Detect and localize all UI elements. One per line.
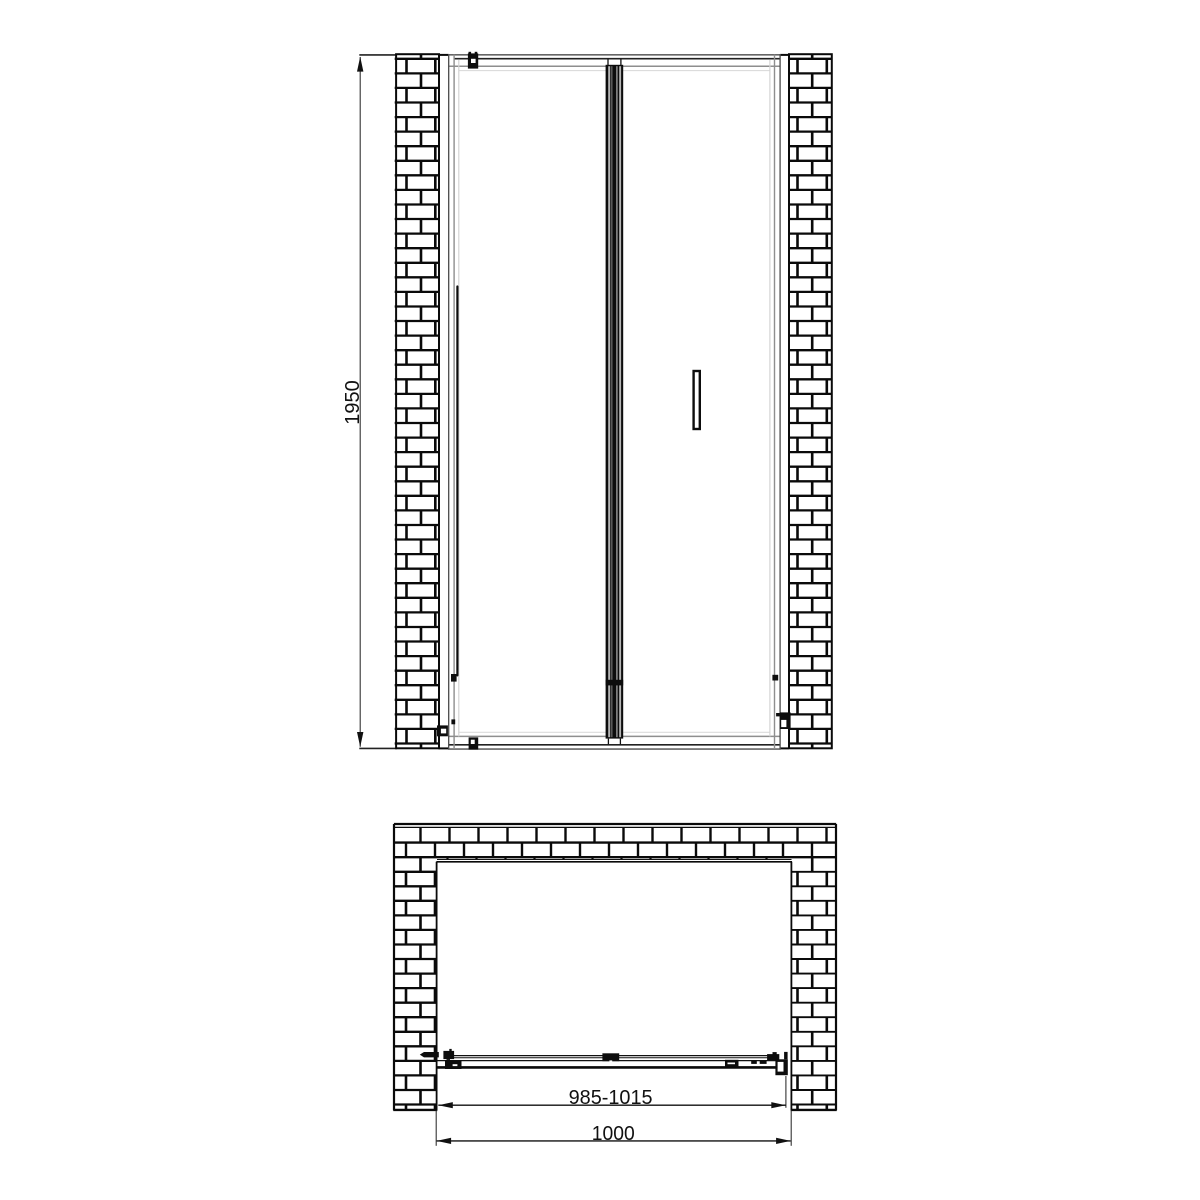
svg-text:1950: 1950 <box>342 380 364 425</box>
svg-text:1000: 1000 <box>592 1123 635 1145</box>
svg-text:985-1015: 985-1015 <box>569 1087 653 1109</box>
